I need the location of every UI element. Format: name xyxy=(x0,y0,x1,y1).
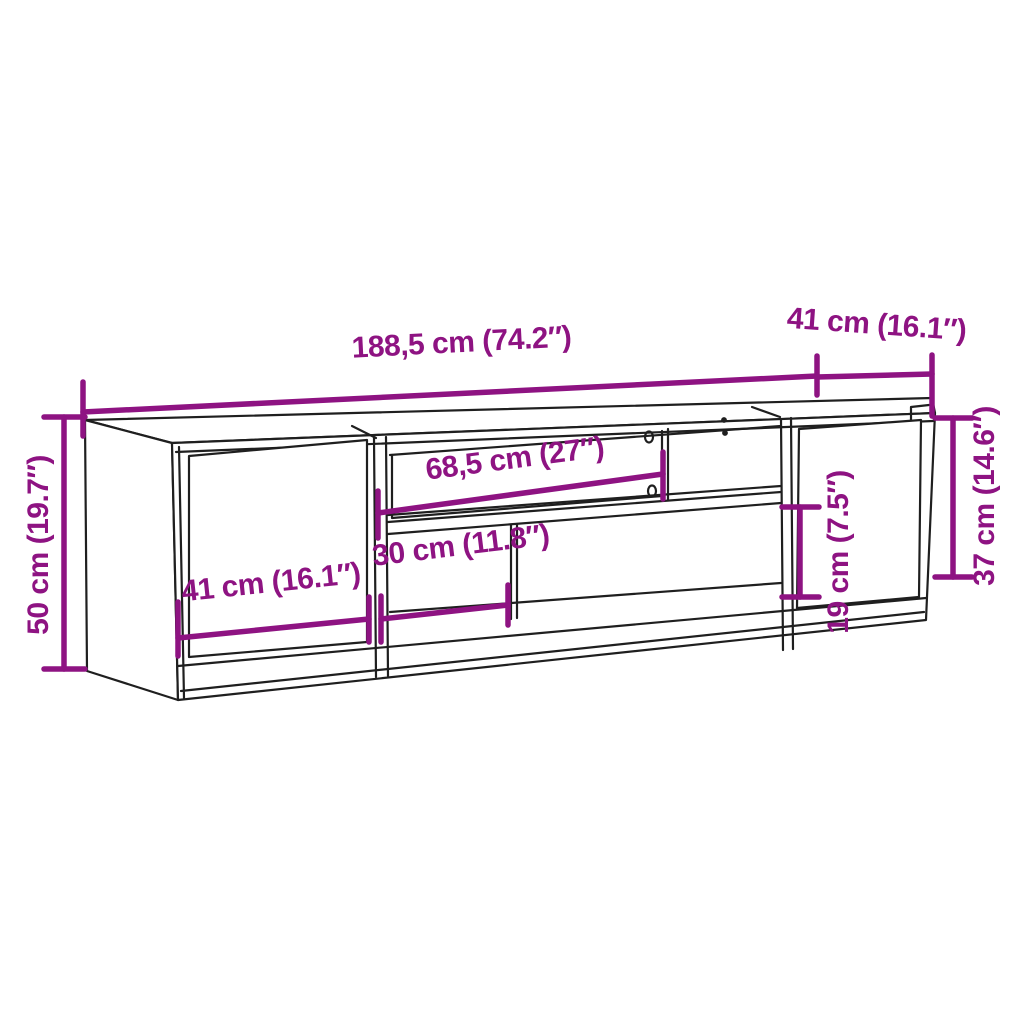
dimension-line xyxy=(817,374,932,377)
furniture-dimension-diagram: 188,5 cm (74.2″) 41 cm (16.1″) 50 cm (19… xyxy=(0,0,1024,1024)
dimension-label-right-section-height: 37 cm (14.6″) xyxy=(968,406,1001,586)
left-side-panel xyxy=(85,420,178,700)
tv-stand-diagram-canvas: 188,5 cm (74.2″) 41 cm (16.1″) 50 cm (19… xyxy=(0,0,1024,1024)
dimension-label-total-width: 188,5 cm (74.2″) xyxy=(351,320,572,364)
dimension-right-section-height xyxy=(935,418,972,577)
right-door xyxy=(797,420,921,608)
dimension-label-open-compartment-height: 19 cm (7.5″) xyxy=(822,470,855,633)
dimension-label-depth: 41 cm (16.1″) xyxy=(786,302,968,347)
screw-hole-icon xyxy=(723,431,727,435)
dimension-label-total-height: 50 cm (19.7″) xyxy=(22,455,55,635)
screw-hole-icon xyxy=(722,418,726,422)
